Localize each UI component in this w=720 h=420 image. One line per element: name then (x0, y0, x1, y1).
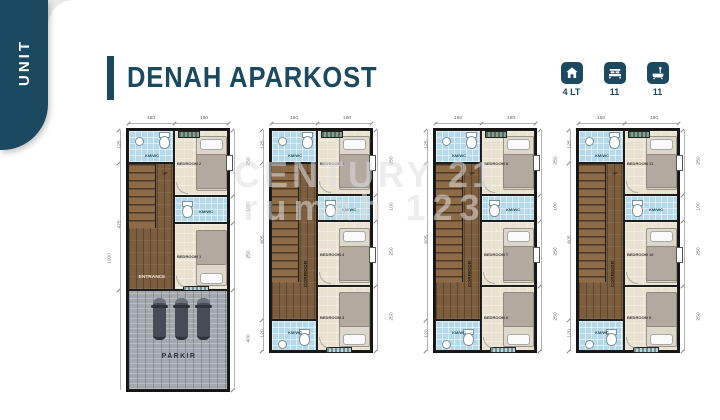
dim-label-right: 400 (245, 328, 251, 349)
room-bed-top: BEDROOM 8 (481, 130, 535, 195)
room-label: KM/WC (141, 153, 164, 158)
room-bed-top: BEDROOM 2 (174, 130, 228, 196)
dim-label-top: 190 (642, 115, 667, 121)
dim-label-left: 125 (259, 134, 265, 155)
room-label: BEDROOM 11 (627, 161, 647, 166)
dim-label-left: 120 (423, 323, 429, 344)
stat-floors: 4 LT (556, 62, 587, 97)
bed-blanket (646, 246, 677, 281)
stairs-up-label: UP (305, 171, 310, 175)
dim-tick (259, 349, 263, 353)
stairs-up-label: UP (612, 171, 617, 175)
door-arc (319, 181, 331, 193)
dim-label-left: 605 (259, 229, 265, 250)
dim-line-top (578, 123, 678, 124)
door-arc (483, 337, 495, 349)
room-bed-bottom: BEDROOM 3 (317, 286, 371, 351)
bed-pillow (650, 139, 673, 150)
bed-blanket (196, 154, 227, 189)
dim-label-right: 250 (552, 241, 558, 262)
window-vent (485, 131, 507, 138)
toilet (302, 136, 313, 149)
room-bed-mid: BEDROOM 4 (317, 221, 371, 286)
dim-label-top: 160 (589, 115, 614, 121)
dim-tick (226, 121, 230, 125)
unit-tab-label: UNIT (16, 39, 33, 86)
staircase (579, 164, 606, 282)
room-label: KM/WC (506, 207, 521, 212)
dim-tick (230, 388, 234, 392)
room-bed-mid: BEDROOM 7 (481, 221, 535, 286)
room-hall: UPENTRANCE (128, 163, 174, 290)
dim-label-left: 120 (566, 323, 572, 344)
door-arc (176, 276, 188, 288)
dim-tick (537, 349, 541, 353)
floor-plan-3: 160190125605120250100250250KM/WCBEDROOM … (435, 130, 535, 351)
room-label: BEDROOM 8 (484, 161, 504, 166)
window-vent (628, 131, 650, 138)
dim-line-right (684, 130, 685, 351)
bed-pillow (200, 139, 223, 150)
bed-blanket (503, 292, 534, 327)
door-arc (176, 182, 188, 194)
dim-label-right: 250 (388, 306, 394, 327)
dim-label-right: 250 (388, 150, 394, 171)
corridor-label: CORRIDOR (303, 256, 308, 292)
dim-label-right: 100 (245, 197, 251, 218)
toilet (325, 204, 336, 217)
room-bath-top: KM/WC (578, 130, 624, 163)
dim-label-top: 160 (446, 115, 471, 121)
toilet (463, 333, 474, 346)
room-bath-bottom: KM/WC (435, 320, 481, 351)
dim-label-left: 125 (423, 134, 429, 155)
room-label: KM/WC (591, 330, 614, 335)
window-sill (533, 155, 540, 171)
dim-label-top: 190 (192, 115, 217, 121)
room-label: BEDROOM 5 (320, 161, 340, 166)
dim-tick (566, 349, 570, 353)
bed-icon (604, 62, 626, 84)
floor-plan-2: 160190125605120250100250250KM/WCBEDROOM … (271, 130, 371, 351)
room-label: KM/WC (342, 207, 357, 212)
motorcycle (153, 298, 166, 340)
room-bath-bottom: KM/WC (578, 320, 624, 351)
toilet (299, 333, 310, 346)
window-sill (533, 247, 540, 263)
bed-blanket (503, 246, 534, 281)
toilet (632, 204, 643, 217)
window-sill (369, 155, 376, 171)
title-accent-bar (107, 56, 114, 100)
dim-label-right: 250 (695, 241, 701, 262)
stat-floors-label: 4 LT (563, 87, 581, 97)
corridor-label: CORRIDOR (467, 256, 472, 292)
room-label: BEDROOM 1 (177, 254, 197, 259)
sink (442, 340, 451, 349)
toilet (159, 136, 170, 149)
room-bed-bottom: BEDROOM 6 (481, 286, 535, 351)
dim-line-right (377, 130, 378, 351)
dim-label-right: 100 (552, 196, 558, 217)
window-sill (226, 155, 233, 171)
stat-bathrooms: 11 (642, 62, 673, 97)
room-corridor: UPCORRIDOR (435, 163, 481, 320)
dim-label-right: 250 (245, 151, 251, 172)
stats-row: 4 LT 11 11 (556, 62, 673, 97)
stat-bathrooms-label: 11 (653, 87, 663, 97)
room-bed-bottom: BEDROOM 9 (624, 286, 678, 351)
room-label: KM/WC (649, 207, 664, 212)
room-bed-bottom: BEDROOM 1 (174, 223, 228, 290)
dim-label-right: 100 (388, 196, 394, 217)
door-arc (626, 337, 638, 349)
toilet (489, 204, 500, 217)
dim-label-right: 100 (695, 196, 701, 217)
window-sill (676, 247, 683, 263)
room-bed-mid: BEDROOM 10 (624, 221, 678, 286)
room-label: KM/WC (448, 330, 471, 335)
room-label: BEDROOM 6 (484, 315, 504, 320)
dim-line-left (120, 130, 121, 390)
door-arc (319, 272, 331, 284)
room-label: KM/WC (199, 209, 214, 214)
dim-line-top (435, 123, 535, 124)
toilet (609, 136, 620, 149)
door-arc (483, 272, 495, 284)
dim-label-right: 250 (695, 150, 701, 171)
bed-blanket (503, 154, 534, 188)
dim-label-right: 250 (552, 150, 558, 171)
dim-tick (533, 121, 537, 125)
floor-plan-4: 160190125605120250100250250KM/WCBEDROOM … (578, 130, 678, 351)
corridor-label: CORRIDOR (610, 256, 615, 292)
bed-pillow (650, 334, 673, 345)
room-label: KM/WC (591, 153, 614, 158)
toilet (606, 333, 617, 346)
room-bath-bottom: KM/WC (271, 320, 317, 351)
bath-icon (647, 62, 669, 84)
dim-label-left: 125 (116, 134, 122, 155)
dim-tick (373, 349, 377, 353)
room-bath-top: KM/WC (128, 130, 174, 163)
bed-blanket (646, 292, 677, 327)
room-label: KM/WC (284, 153, 307, 158)
dim-label-right: 250 (388, 241, 394, 262)
room-bath-mid: KM/WC (317, 195, 371, 221)
room-parking: PARKIR (128, 290, 228, 390)
room-label: BEDROOM 10 (627, 252, 647, 257)
bed-pillow (507, 231, 530, 242)
floor-plan-1: 1601901254751000250100250400KM/WCBEDROOM… (128, 130, 228, 390)
bed-pillow (343, 231, 366, 242)
dim-label-right: 250 (552, 306, 558, 327)
window-vent (178, 131, 200, 138)
sink (278, 137, 287, 146)
bed-blanket (196, 230, 227, 265)
toilet (466, 136, 477, 149)
title-block: DENAH APARKOST (107, 56, 412, 100)
entrance-label: ENTRANCE (138, 274, 166, 279)
bed-blanket (339, 246, 370, 281)
dim-tick (676, 121, 680, 125)
house-icon (561, 62, 583, 84)
room-bath-top: KM/WC (435, 130, 481, 163)
door-arc (626, 272, 638, 284)
dim-tick (423, 349, 427, 353)
dim-label-right: 250 (245, 244, 251, 265)
unit-tab: UNIT (0, 0, 48, 150)
dim-line-top (128, 123, 228, 124)
room-label: BEDROOM 4 (320, 252, 340, 257)
bed-blanket (646, 154, 677, 188)
dim-tick (369, 121, 373, 125)
stat-bedrooms-label: 11 (610, 87, 620, 97)
page-title: DENAH APARKOST (127, 62, 378, 95)
sink (442, 137, 451, 146)
dim-label-overall: 1000 (106, 248, 112, 269)
dim-label-top: 190 (335, 115, 360, 121)
staircase (436, 164, 463, 282)
sink (135, 137, 144, 146)
room-bath-top: KM/WC (271, 130, 317, 163)
staircase (129, 164, 156, 228)
window-vent (321, 131, 343, 138)
bed-pillow (200, 273, 223, 284)
bed-pillow (507, 139, 530, 150)
room-bed-top: BEDROOM 11 (624, 130, 678, 195)
room-bath-mid: KM/WC (174, 196, 228, 223)
room-label: BEDROOM 3 (320, 315, 340, 320)
sink (585, 340, 594, 349)
room-label: KM/WC (448, 153, 471, 158)
dim-label-top: 160 (139, 115, 164, 121)
room-label: BEDROOM 9 (627, 315, 647, 320)
dim-label-left: 125 (566, 134, 572, 155)
room-corridor: UPCORRIDOR (271, 163, 317, 320)
dim-label-top: 160 (282, 115, 307, 121)
sink (585, 137, 594, 146)
bed-blanket (339, 292, 370, 327)
stairs-up-label: UP (162, 171, 167, 175)
room-label: BEDROOM 2 (177, 161, 197, 166)
dim-label-left: 605 (423, 229, 429, 250)
dim-label-left: 475 (116, 214, 122, 235)
window-sill (676, 155, 683, 171)
staircase (272, 164, 299, 282)
motorcycle (175, 298, 188, 340)
dim-label-left: 120 (259, 323, 265, 344)
door-arc (319, 337, 331, 349)
parking-label: PARKIR (144, 353, 214, 361)
stairs-up-label: UP (469, 171, 474, 175)
room-bath-mid: KM/WC (624, 195, 678, 221)
dim-tick (680, 349, 684, 353)
toilet (182, 205, 193, 218)
room-bath-mid: KM/WC (481, 195, 535, 221)
dim-label-left: 605 (566, 229, 572, 250)
door-arc (626, 181, 638, 193)
bed-pillow (343, 334, 366, 345)
room-label: BEDROOM 7 (484, 252, 504, 257)
bed-pillow (507, 334, 530, 345)
dim-line-right (541, 130, 542, 351)
window-sill (369, 247, 376, 263)
door-arc (483, 181, 495, 193)
stat-bedrooms: 11 (599, 62, 630, 97)
dim-label-top: 190 (499, 115, 524, 121)
bed-blanket (339, 154, 370, 188)
room-corridor: UPCORRIDOR (578, 163, 624, 320)
dim-line-right (234, 130, 235, 390)
room-bed-top: BEDROOM 5 (317, 130, 371, 195)
dim-line-top (271, 123, 371, 124)
sink (278, 340, 287, 349)
room-label: KM/WC (284, 330, 307, 335)
bed-pillow (650, 231, 673, 242)
motorcycle (197, 298, 210, 340)
dim-label-right: 250 (695, 306, 701, 327)
bed-pillow (343, 139, 366, 150)
